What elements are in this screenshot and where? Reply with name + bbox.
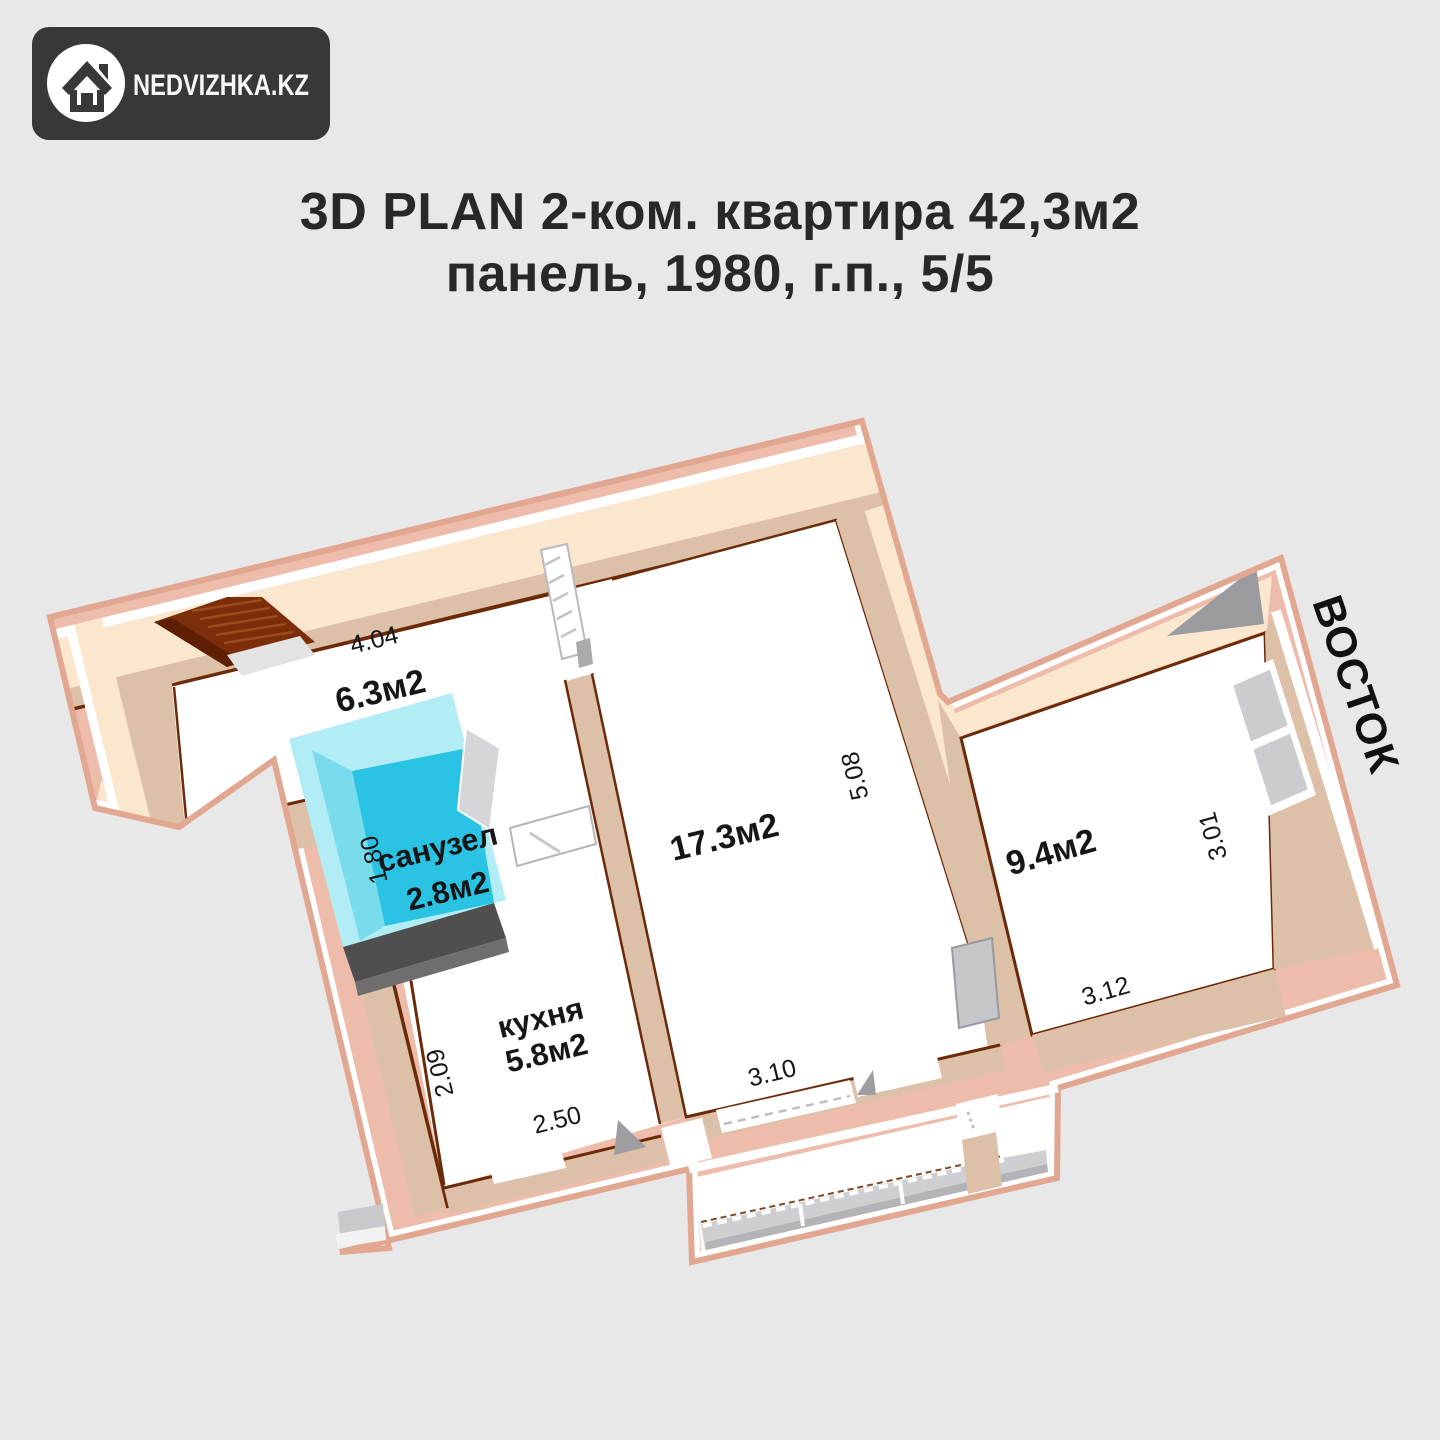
svg-text:NEDVIZHKA.KZ: NEDVIZHKA.KZ [133, 69, 309, 102]
